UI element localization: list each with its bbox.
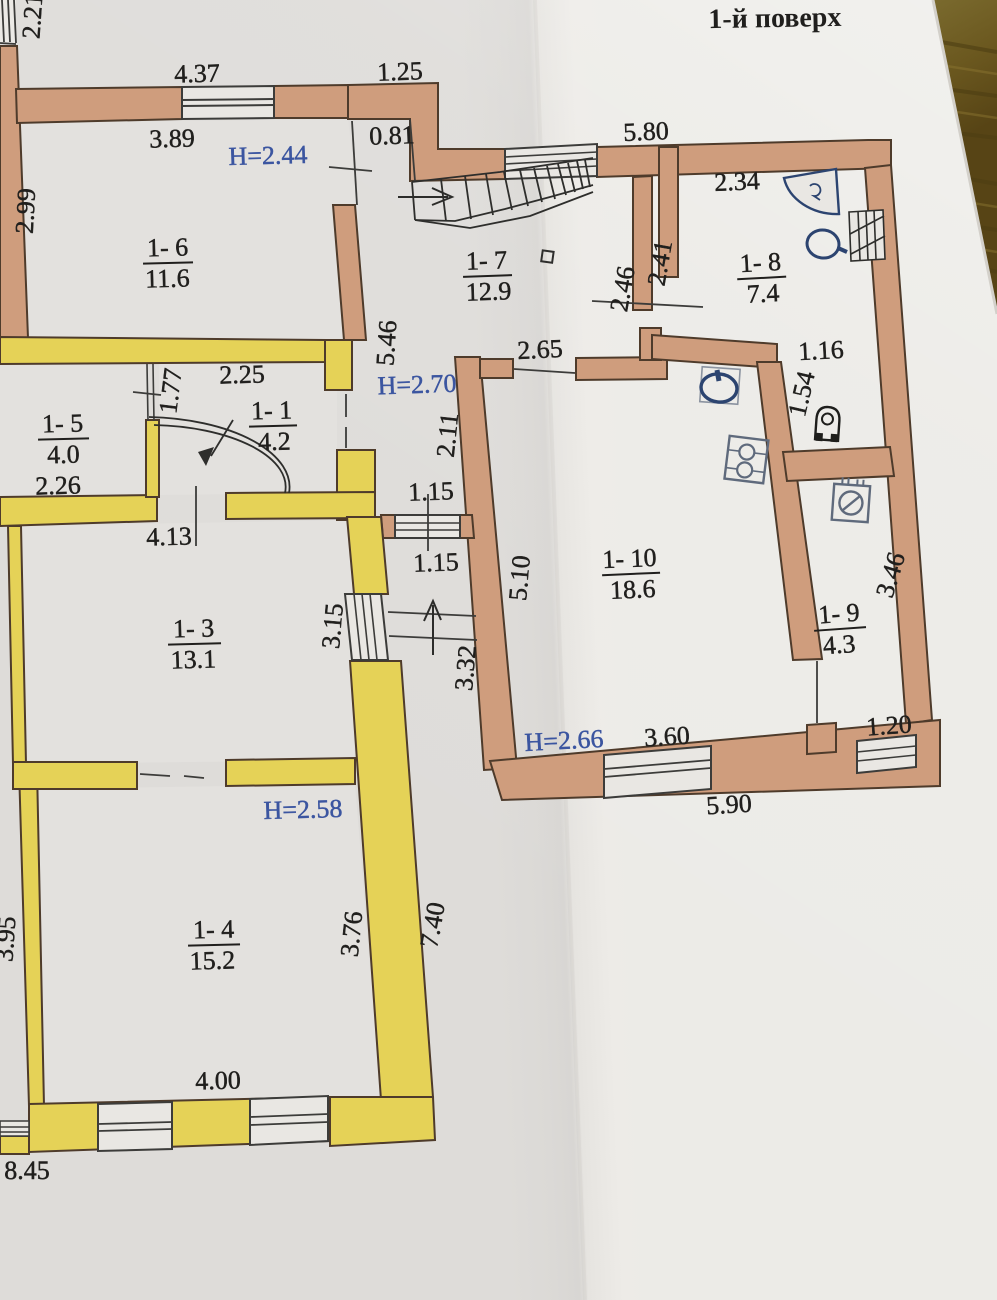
svg-text:4.0: 4.0 xyxy=(47,440,80,470)
svg-text:3.95: 3.95 xyxy=(0,915,22,962)
svg-text:2.21: 2.21 xyxy=(16,0,48,40)
svg-text:2.25: 2.25 xyxy=(219,359,265,389)
svg-text:1- 4: 1- 4 xyxy=(193,914,235,944)
svg-text:3.76: 3.76 xyxy=(335,910,369,958)
svg-text:3.15: 3.15 xyxy=(316,602,349,650)
svg-text:3.32: 3.32 xyxy=(449,644,482,692)
svg-text:1- 6: 1- 6 xyxy=(147,232,189,262)
svg-text:1.15: 1.15 xyxy=(408,476,454,507)
svg-text:1.77: 1.77 xyxy=(153,367,187,416)
svg-text:4.37: 4.37 xyxy=(174,58,220,88)
svg-text:2.65: 2.65 xyxy=(516,334,563,365)
svg-text:2.11: 2.11 xyxy=(431,411,464,458)
svg-text:H=2.66: H=2.66 xyxy=(524,724,604,757)
svg-text:11.6: 11.6 xyxy=(145,263,190,293)
svg-text:7.4: 7.4 xyxy=(746,278,780,309)
svg-text:1- 3: 1- 3 xyxy=(173,613,215,643)
svg-text:1.25: 1.25 xyxy=(377,56,423,87)
svg-text:1-й поверх: 1-й поверх xyxy=(708,2,842,35)
svg-text:1.20: 1.20 xyxy=(865,709,912,741)
svg-text:1- 7: 1- 7 xyxy=(465,245,507,275)
svg-text:1- 10: 1- 10 xyxy=(602,543,657,574)
svg-text:5.46: 5.46 xyxy=(370,319,402,366)
svg-text:1- 9: 1- 9 xyxy=(817,598,860,630)
svg-text:1.16: 1.16 xyxy=(797,335,844,366)
svg-text:5.80: 5.80 xyxy=(623,116,670,147)
svg-text:1.15: 1.15 xyxy=(413,547,459,578)
svg-text:2.26: 2.26 xyxy=(35,470,81,500)
svg-text:5.90: 5.90 xyxy=(705,789,752,821)
svg-text:8.45: 8.45 xyxy=(4,1156,50,1185)
svg-text:3.89: 3.89 xyxy=(149,123,195,153)
svg-text:H=2.58: H=2.58 xyxy=(263,794,343,825)
svg-text:1- 5: 1- 5 xyxy=(42,408,84,438)
svg-text:4.2: 4.2 xyxy=(258,427,291,457)
svg-text:H=2.70: H=2.70 xyxy=(377,369,457,401)
svg-text:5.10: 5.10 xyxy=(503,554,536,602)
svg-text:18.6: 18.6 xyxy=(609,574,656,605)
svg-text:4.00: 4.00 xyxy=(195,1065,241,1095)
svg-text:15.2: 15.2 xyxy=(189,945,235,975)
svg-text:13.1: 13.1 xyxy=(170,644,216,674)
svg-text:2.34: 2.34 xyxy=(714,166,761,197)
svg-text:4.3: 4.3 xyxy=(822,629,856,660)
svg-text:2.99: 2.99 xyxy=(10,187,41,234)
svg-text:1- 8: 1- 8 xyxy=(739,247,782,278)
svg-text:12.9: 12.9 xyxy=(465,276,511,307)
svg-text:0.81: 0.81 xyxy=(369,120,415,151)
svg-text:4.13: 4.13 xyxy=(146,521,192,551)
svg-text:3.60: 3.60 xyxy=(643,721,690,753)
svg-text:H=2.44: H=2.44 xyxy=(228,140,308,171)
svg-text:1- 1: 1- 1 xyxy=(251,395,293,425)
